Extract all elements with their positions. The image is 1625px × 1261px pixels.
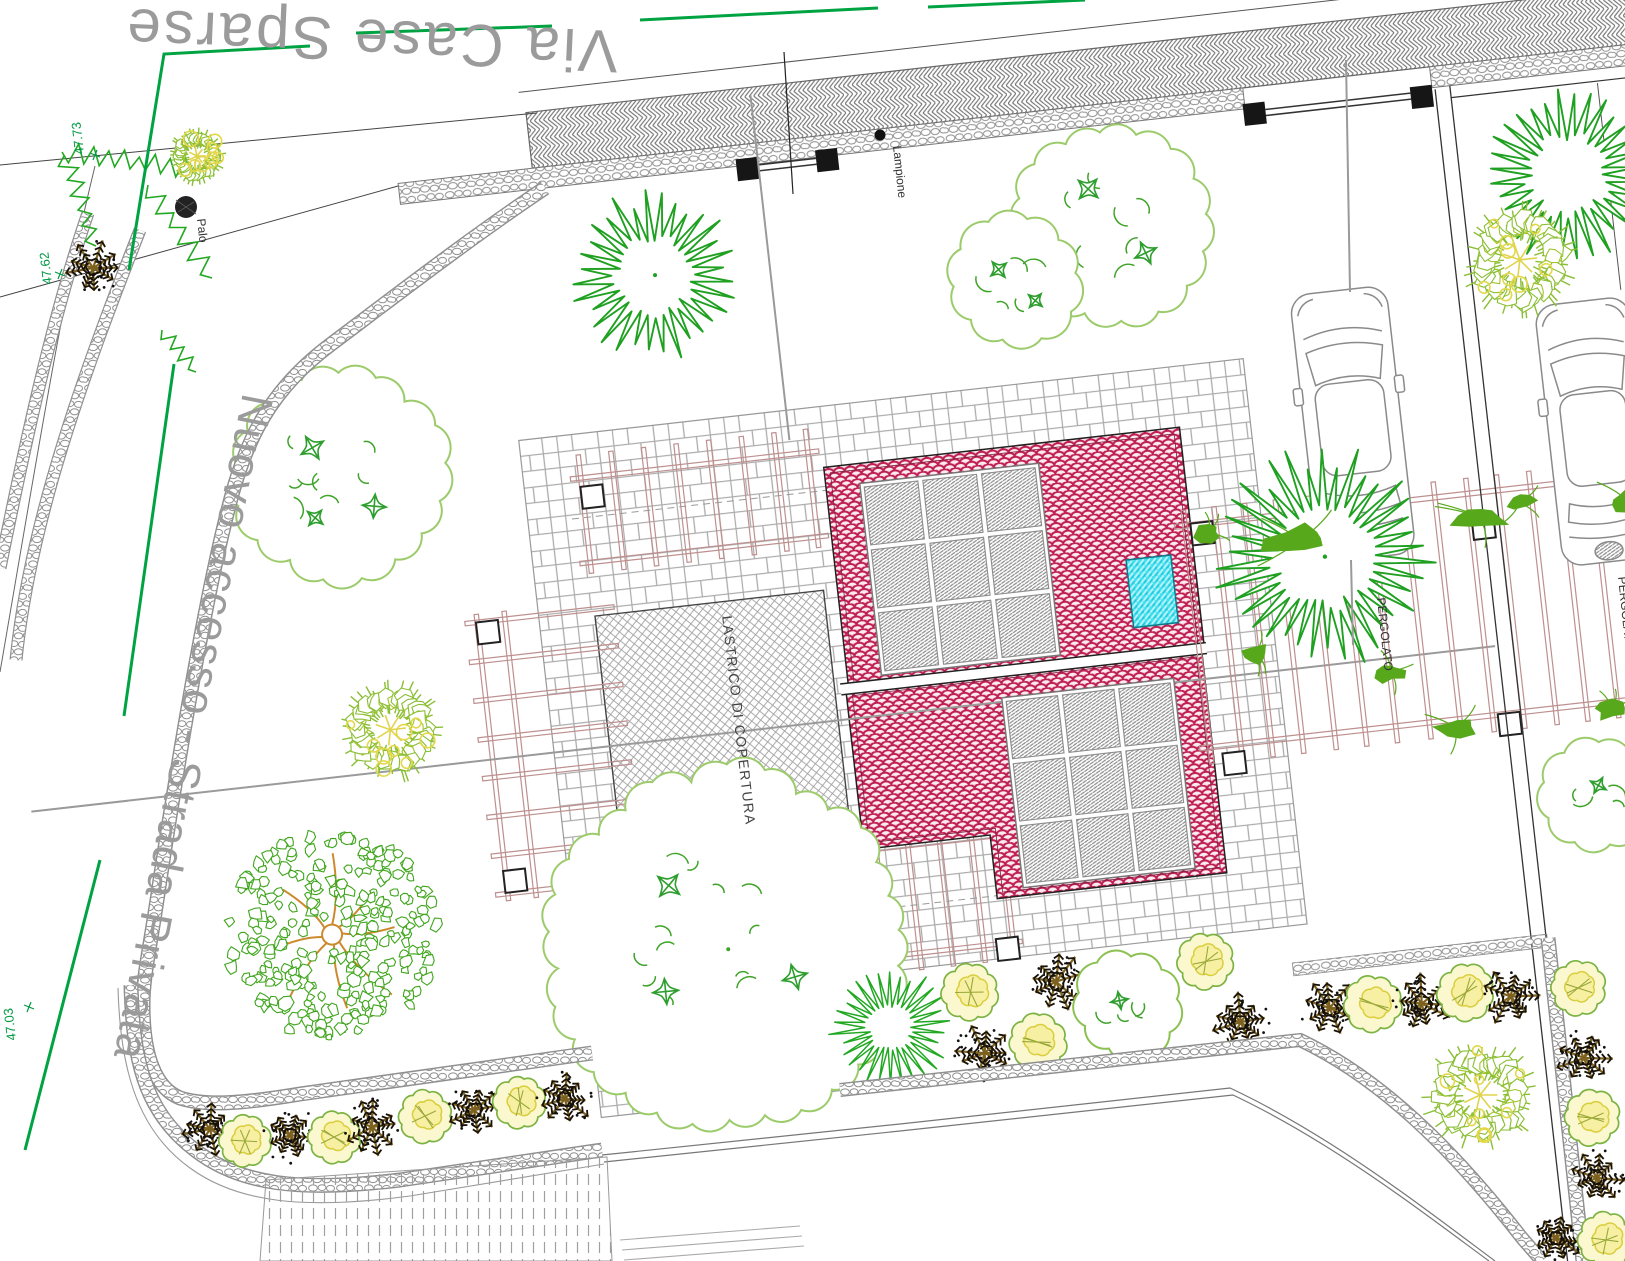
svg-text:Palo: Palo <box>194 218 210 244</box>
